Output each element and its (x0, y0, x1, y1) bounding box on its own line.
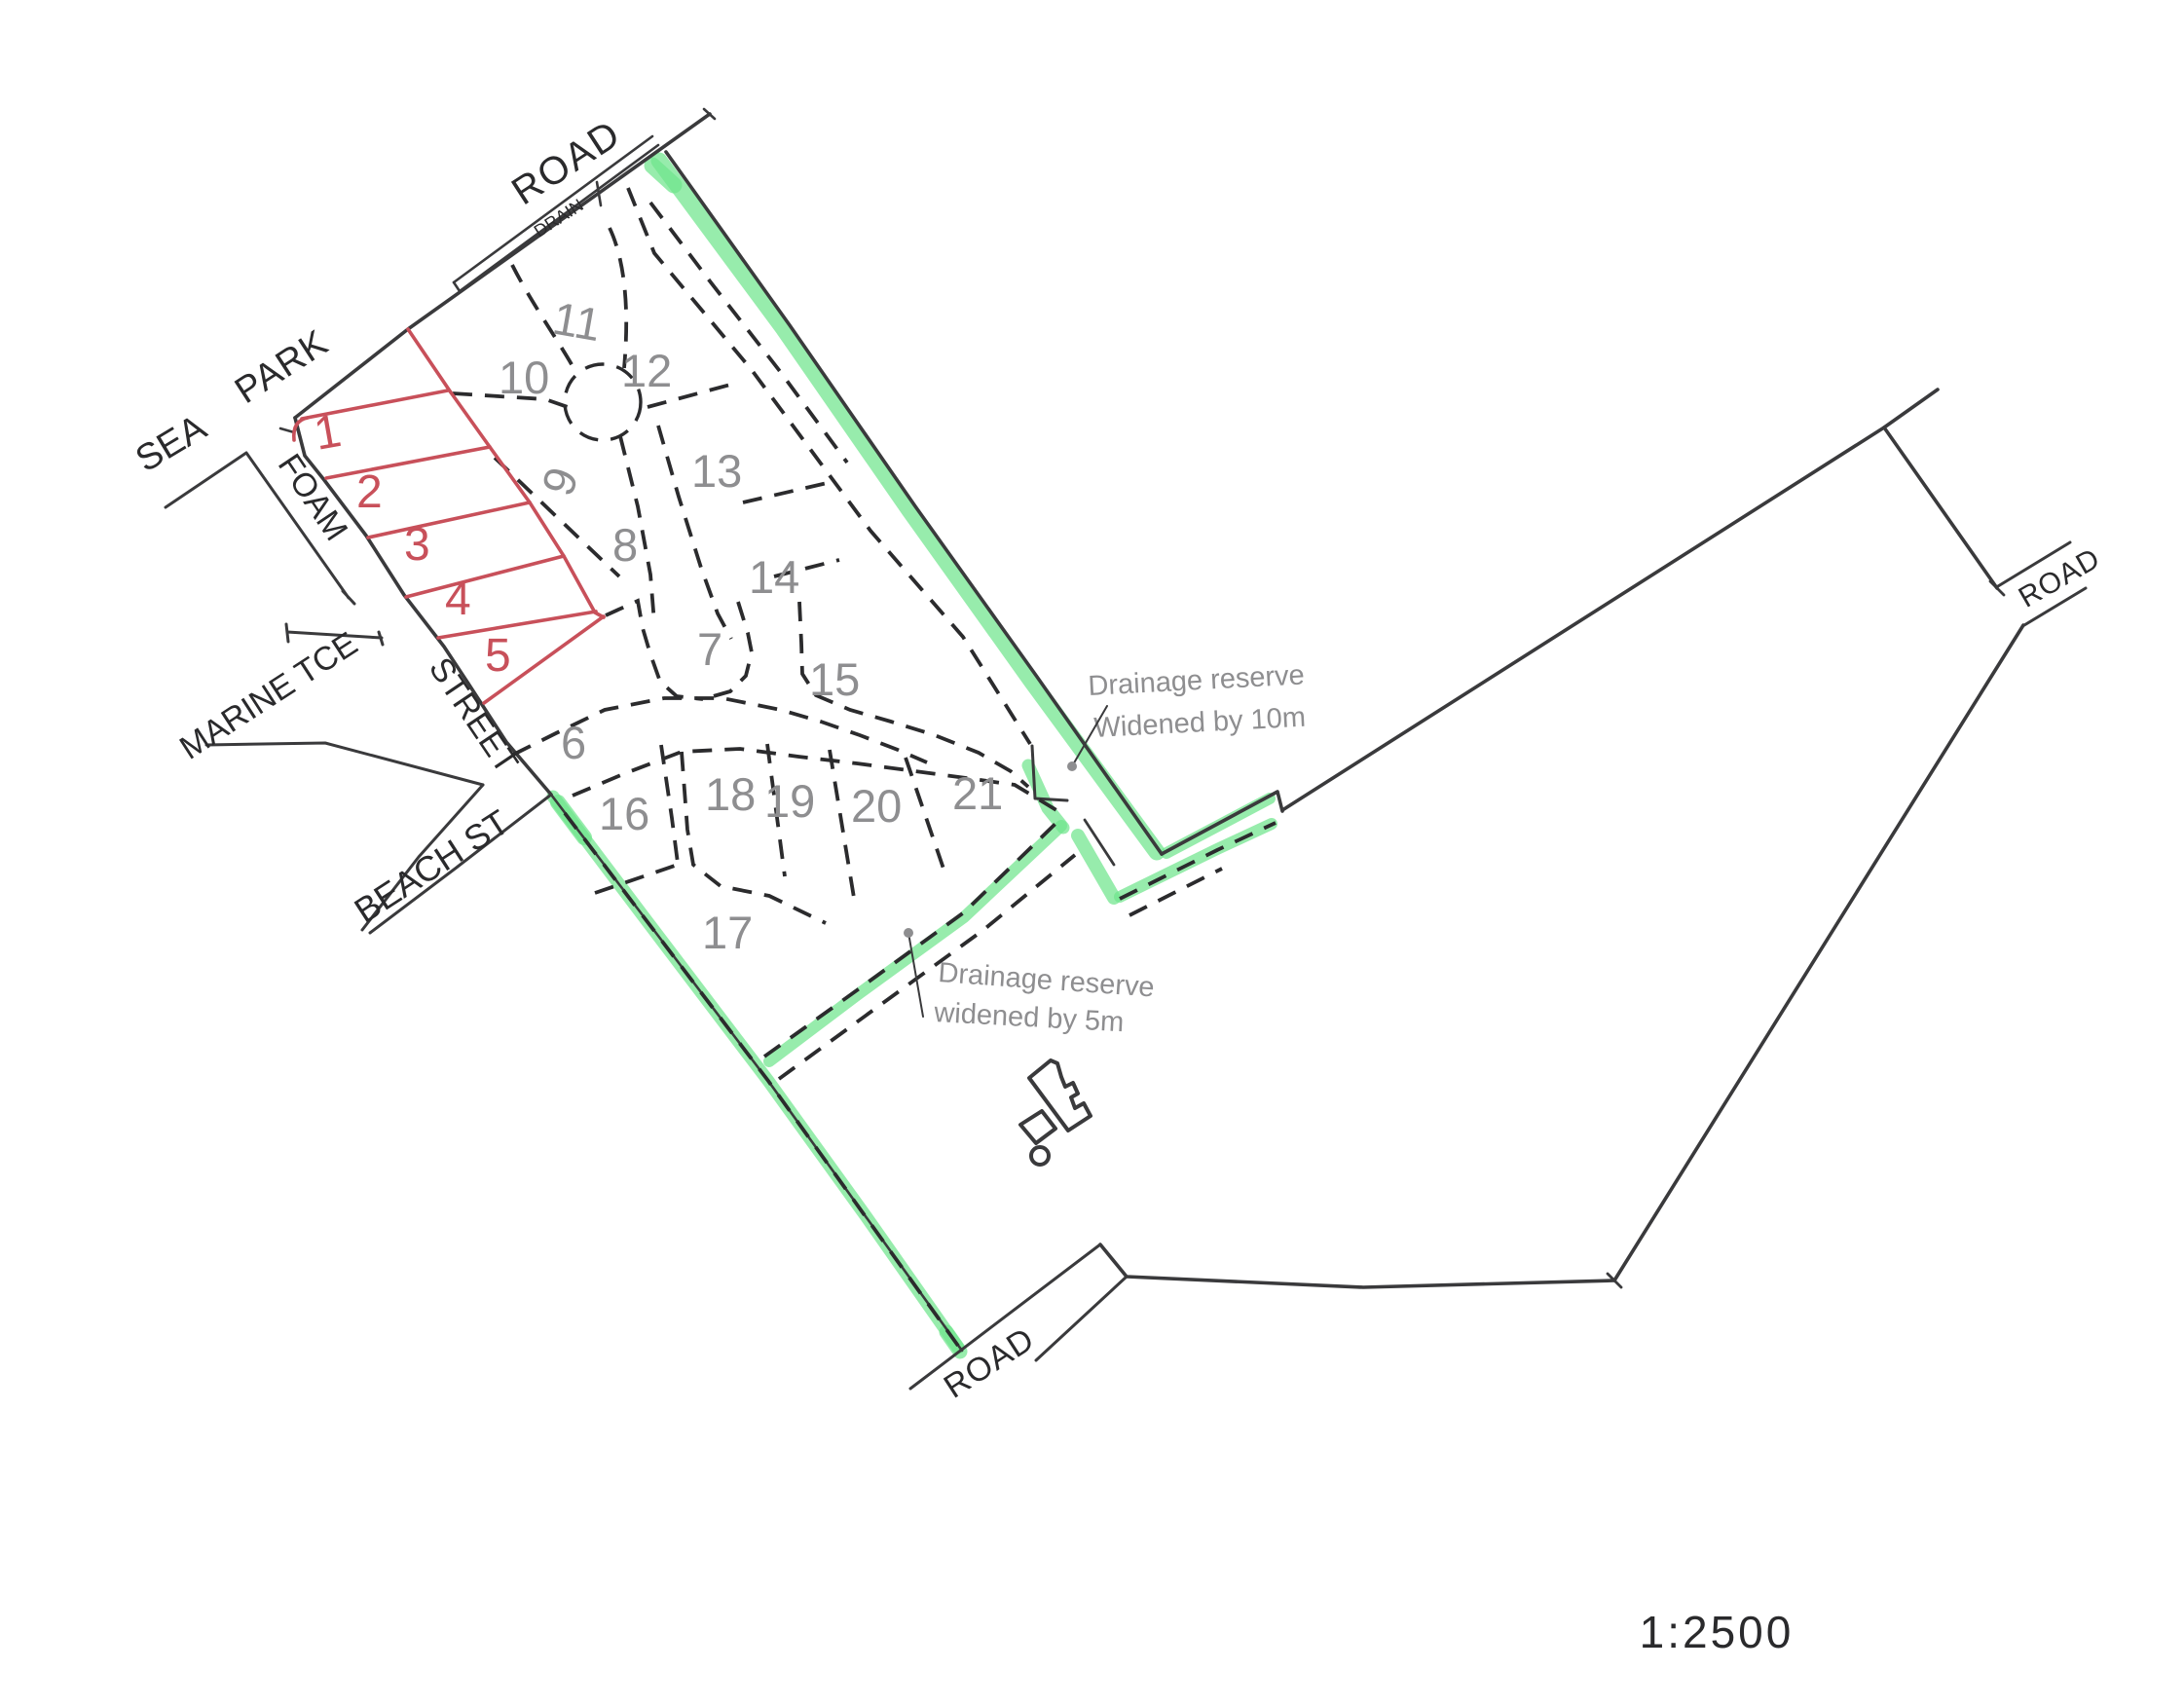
svg-text:18: 18 (705, 768, 756, 820)
svg-text:14: 14 (749, 551, 799, 603)
svg-text:7: 7 (697, 623, 722, 675)
svg-text:12: 12 (621, 345, 672, 396)
svg-text:21: 21 (952, 767, 1003, 819)
svg-text:15: 15 (809, 653, 860, 705)
svg-text:13: 13 (691, 445, 742, 497)
svg-text:2: 2 (356, 466, 383, 518)
svg-text:3: 3 (404, 519, 430, 571)
svg-text:4: 4 (445, 574, 471, 625)
svg-text:20: 20 (851, 780, 902, 832)
svg-text:8: 8 (612, 519, 638, 571)
svg-text:16: 16 (599, 788, 649, 839)
svg-text:5: 5 (485, 630, 511, 682)
svg-text:19: 19 (764, 775, 815, 827)
svg-text:17: 17 (702, 907, 753, 958)
svg-text:10: 10 (499, 352, 549, 403)
svg-text:11: 11 (549, 292, 605, 352)
svg-text:1:2500: 1:2500 (1640, 1607, 1795, 1657)
svg-text:6: 6 (561, 717, 586, 768)
